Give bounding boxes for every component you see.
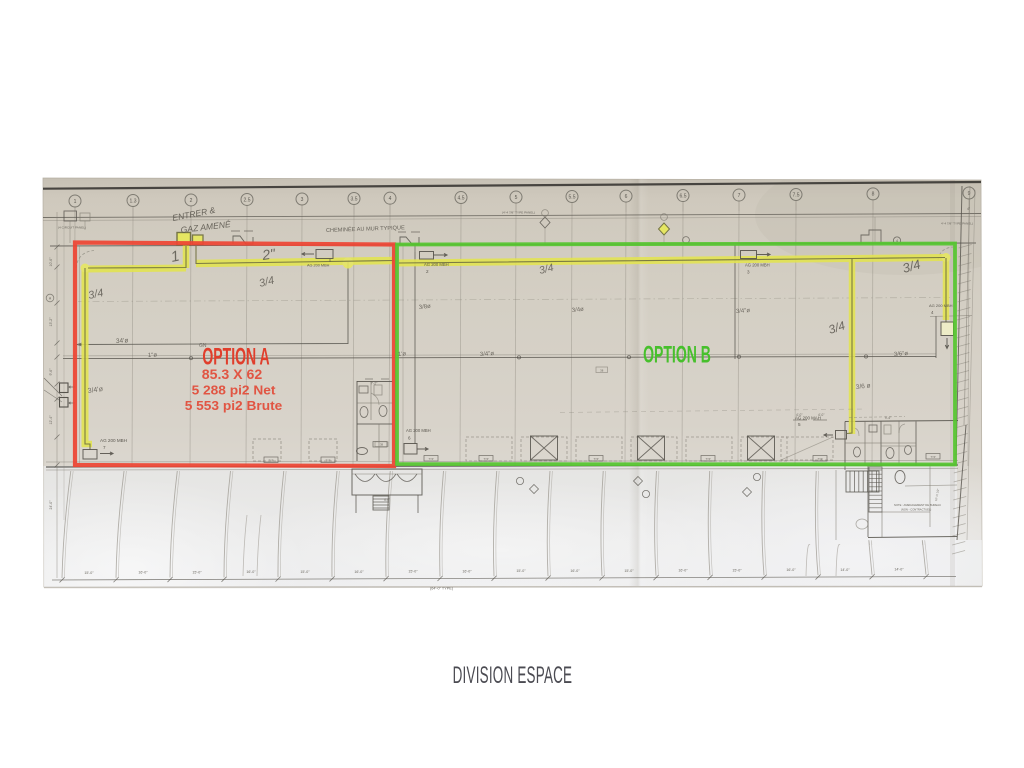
svg-text:GN: GN [199,343,207,349]
svg-text:15'-0": 15'-0" [624,569,634,573]
svg-text:16'-0": 16'-0" [354,570,364,574]
svg-text:TYP: TYP [268,458,273,462]
svg-text:15'-0": 15'-0" [516,569,526,573]
svg-text:TYP: TYP [428,457,433,461]
svg-text:3/4ø: 3/4ø [572,307,585,314]
svg-text:(NON - CONTRACTUEL): (NON - CONTRACTUEL) [901,508,931,512]
svg-text:16'-0": 16'-0" [786,568,796,572]
svg-text:(4'-4 7/8" TYPE PANEL): (4'-4 7/8" TYPE PANEL) [502,211,535,215]
svg-text:14'-0": 14'-0" [840,568,850,572]
svg-text:5: 5 [798,422,801,427]
svg-text:4.5: 4.5 [458,195,465,201]
svg-text:16'-0": 16'-0" [462,569,472,573]
svg-text:AG 200 MBH: AG 200 MBH [406,428,431,433]
svg-text:AG 200 MBH: AG 200 MBH [745,263,770,268]
svg-text:7.5: 7.5 [793,192,800,198]
svg-text:6.5: 6.5 [680,193,687,199]
svg-text:6: 6 [408,436,411,441]
svg-text:3/6"ø: 3/6"ø [894,351,909,358]
svg-text:3: 3 [747,270,750,275]
svg-text:15'-0": 15'-0" [84,571,94,575]
svg-text:6: 6 [625,194,628,200]
svg-text:TYP: TYP [593,457,598,461]
svg-text:7: 7 [738,193,741,199]
svg-text:3/8ø: 3/8ø [419,304,432,311]
svg-text:3/4"ø: 3/4"ø [736,308,751,315]
svg-text:TYP: TYP [325,458,330,462]
svg-text:38: 38 [600,368,604,372]
svg-text:12'-4": 12'-4" [49,415,53,425]
svg-text:8: 8 [872,192,875,198]
svg-text:1: 1 [74,199,77,205]
svg-text:16'-0": 16'-0" [138,571,148,575]
svg-text:2: 2 [426,269,429,274]
svg-text:TYP: TYP [705,457,710,461]
svg-text:7: 7 [103,445,106,450]
svg-text:3/4"ø: 3/4"ø [480,351,495,358]
svg-text:(4 CIRCUIT PANEL): (4 CIRCUIT PANEL) [58,226,86,230]
svg-text:5.5: 5.5 [569,194,576,200]
svg-text:15'-0": 15'-0" [732,568,742,572]
svg-text:AG 200 MBH: AG 200 MBH [307,264,330,268]
svg-text:15'-0": 15'-0" [300,570,310,574]
svg-text:OPTION B: OPTION B [643,342,711,369]
svg-text:15'-0": 15'-0" [408,570,418,574]
svg-text:1"ø: 1"ø [148,353,158,359]
svg-text:3: 3 [301,197,304,203]
svg-text:10'-6": 10'-6" [49,257,53,267]
svg-text:4'-4 7/8" TYPE PANEL): 4'-4 7/8" TYPE PANEL) [941,222,973,226]
svg-text:85.3 X 62: 85.3 X 62 [202,366,263,382]
svg-text:24'-0": 24'-0" [49,500,53,510]
svg-text:TYP: TYP [483,457,488,461]
svg-text:9'-6": 9'-6" [49,368,53,376]
svg-text:TYP: TYP [930,455,935,459]
svg-text:2: 2 [190,198,193,204]
svg-text:14'-0": 14'-0" [894,568,904,572]
svg-text:15'-0": 15'-0" [192,570,202,574]
svg-text:38: 38 [380,443,384,447]
svg-text:5 288 pi2 Net: 5 288 pi2 Net [192,383,276,398]
svg-text:5 553 pi2 Brute: 5 553 pi2 Brute [185,398,283,413]
svg-text:(64'-0" TYPE): (64'-0" TYPE) [430,587,454,591]
svg-text:13'-2": 13'-2" [49,317,53,327]
svg-text:AG 200 MBH: AG 200 MBH [100,438,127,443]
svg-text:4: 4 [389,196,392,202]
svg-text:AG 200 MAH: AG 200 MAH [795,416,821,421]
svg-text:1'ø: 1'ø [398,351,407,358]
svg-text:1.3: 1.3 [130,198,137,204]
svg-text:NOTE : AMENAGEMENT DE BUREAU: NOTE : AMENAGEMENT DE BUREAU [894,503,941,507]
svg-text:AG 200 MBH: AG 200 MBH [929,303,953,308]
svg-text:34'ø: 34'ø [116,337,129,345]
svg-text:16'-0": 16'-0" [246,570,256,574]
svg-text:7'-2": 7'-2" [371,382,379,386]
svg-text:3.5: 3.5 [351,196,358,202]
svg-text:16'-0": 16'-0" [678,569,688,573]
svg-text:16'-0": 16'-0" [570,569,580,573]
svg-text:AG 200 MBH: AG 200 MBH [424,262,449,267]
svg-text:2.5: 2.5 [244,197,251,203]
svg-text:5: 5 [515,195,518,201]
